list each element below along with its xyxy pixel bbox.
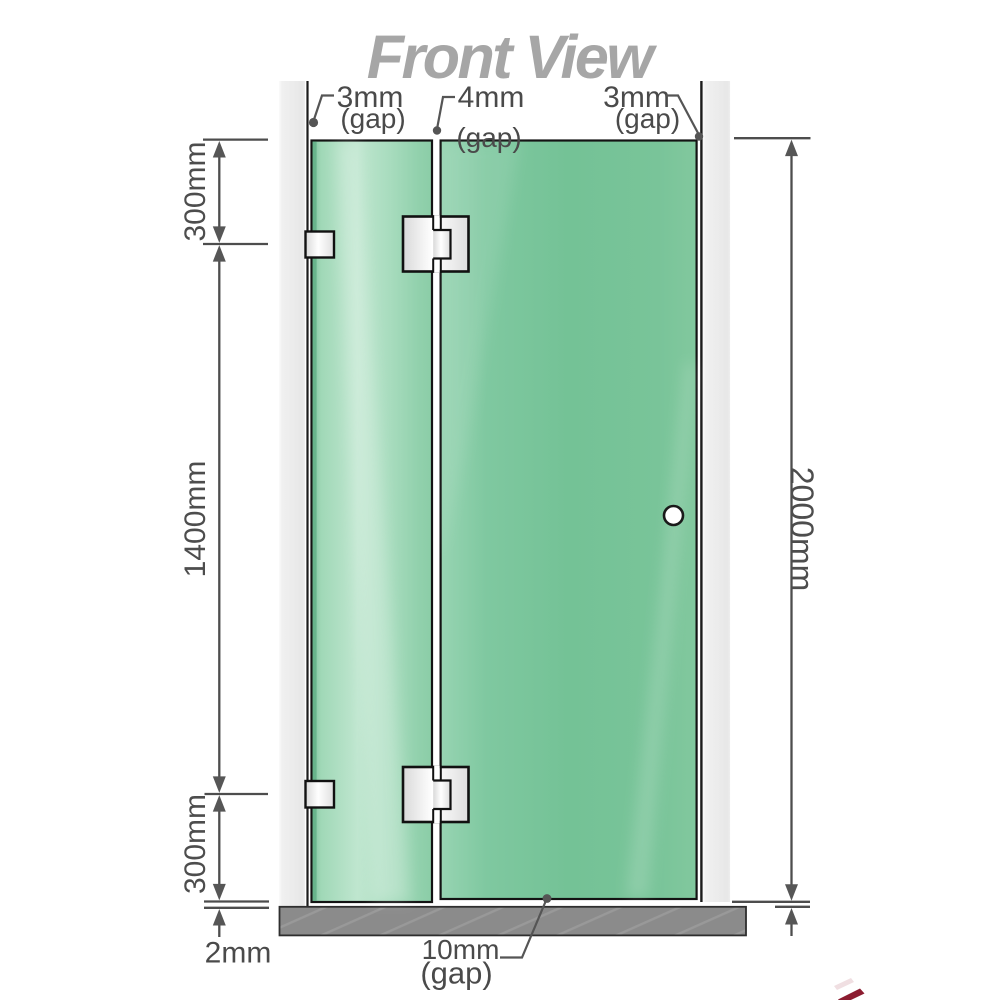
svg-text:300mm: 300mm — [179, 141, 212, 241]
svg-text:(gap): (gap) — [340, 103, 405, 134]
svg-text:4mm: 4mm — [458, 81, 525, 114]
svg-text:2mm: 2mm — [205, 937, 272, 970]
svg-text:300mm: 300mm — [179, 794, 212, 894]
svg-text:(gap): (gap) — [456, 122, 521, 153]
svg-text:1400mm: 1400mm — [179, 461, 212, 578]
svg-text:(gap): (gap) — [615, 103, 680, 134]
svg-text:2000mm: 2000mm — [784, 467, 820, 592]
svg-text:(gap): (gap) — [420, 956, 492, 991]
